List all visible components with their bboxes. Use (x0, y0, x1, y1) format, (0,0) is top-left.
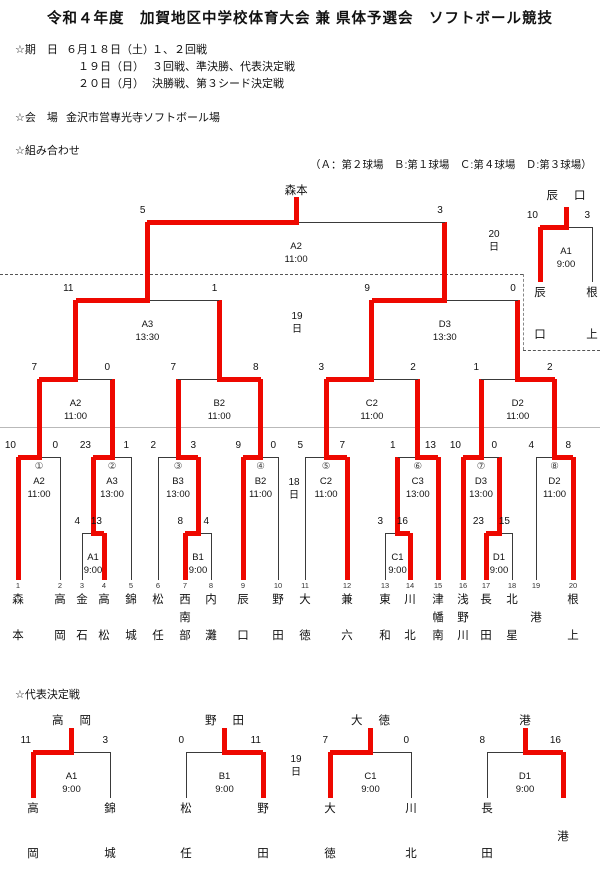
qf-A2-code: A2 (54, 398, 98, 409)
team-name-16-char: 野 (455, 609, 471, 625)
r2-8-left-score: 4 (510, 440, 534, 451)
r2-3-code: B3 (156, 476, 200, 487)
r2-8-code: D2 (533, 476, 577, 487)
day-label-1: 19 日 (282, 310, 312, 336)
third-seed-right-team-name-char: 上 (584, 326, 600, 342)
team-seed-14: 14 (400, 581, 420, 590)
rep-D1-code: D1 (503, 771, 547, 782)
team-seed-1: 1 (8, 581, 28, 590)
rep-C1-right-team-name-char: 川 (403, 800, 419, 816)
rep-section-heading: ☆代表決定戦 (15, 686, 80, 702)
sf-A3-advance-line (145, 222, 150, 300)
team-seed-20: 20 (563, 581, 583, 590)
final-time: 11:00 (274, 254, 318, 265)
day-separator-notch-vertical (523, 274, 524, 350)
r2-7-right-score: 0 (473, 440, 497, 451)
qf-A2-right-score: 0 (86, 362, 110, 373)
team-name-10-char: 田 (270, 627, 286, 643)
team-name-4-char: 高 (96, 591, 112, 607)
team-name-18-char: 星 (504, 627, 520, 643)
r1-B1-right-score: 4 (185, 516, 209, 527)
team-seed-16: 16 (453, 581, 473, 590)
day-label-2: 18 日 (279, 476, 309, 502)
team-name-3-char: 石 (74, 627, 90, 643)
rep-D1-right-score: 16 (537, 735, 561, 746)
team-name-11-char: 大 (297, 591, 313, 607)
team-name-20-char: 根 (565, 591, 581, 607)
sf-A3-left-score: 11 (50, 283, 74, 294)
r1-C1-time: 9:00 (376, 565, 420, 576)
qf-C2-advance-line (369, 300, 374, 379)
team-seed-15: 15 (428, 581, 448, 590)
rep-B1-winner-name: 野田 (183, 712, 283, 728)
final-winner-name: 森本 (246, 182, 346, 198)
r2-2-right-score: 1 (105, 440, 129, 451)
team-name-17-char: 長 (478, 591, 494, 607)
team-name-6-char: 松 (150, 591, 166, 607)
fields-note: （Ａ：第２球場 Ｂ:第１球場 Ｃ:第４球場 Ｄ:第３球場） (310, 157, 592, 172)
team-name-6-char: 任 (150, 627, 166, 643)
r2-8-right-score: 8 (547, 440, 571, 451)
r1-A1-right-score: 13 (78, 516, 102, 527)
qf-A2-time: 11:00 (54, 411, 98, 422)
team-name-20-char: 上 (565, 627, 581, 643)
r2-2-number: ② (104, 461, 120, 472)
rep-A1-right-team-name-char: 城 (102, 845, 118, 861)
team-name-7-char: 南 (177, 609, 193, 625)
sf-A3-code: A3 (125, 319, 169, 330)
sf-D3-time: 13:30 (423, 332, 467, 343)
rep-B1-left-score: 0 (160, 735, 184, 746)
r2-5-code: C2 (304, 476, 348, 487)
team-name-13-char: 和 (377, 627, 393, 643)
schedule-games-2: ３回戦、準決勝、代表決定戦 (152, 58, 295, 74)
sf-A3-time: 13:30 (125, 332, 169, 343)
qf-A2-left-score: 7 (13, 362, 37, 373)
rep-A1-winner-bar (33, 750, 74, 755)
rep-D1-left-team-name-char: 田 (479, 845, 495, 861)
qf-D2-right-score: 2 (529, 362, 553, 373)
day-separator-notch-horizontal (523, 350, 600, 351)
r2-7-number: ⑦ (473, 461, 489, 472)
schedule-games-1: １、２回戦 (152, 41, 207, 57)
rep-C1-left-line (328, 752, 333, 798)
rep-D1-left-team-name-char: 長 (479, 800, 495, 816)
rep-A1-winner-name: 高岡 (30, 712, 130, 728)
team-name-1-char: 森 (10, 591, 26, 607)
rep-D1-winner-bar (523, 750, 564, 755)
r2-5-right-score: 7 (321, 440, 345, 451)
rep-C1-time: 9:00 (349, 784, 393, 795)
r1-D1-code: D1 (477, 552, 521, 563)
r2-1-number: ① (31, 461, 47, 472)
r1-D1-right-score: 15 (486, 516, 510, 527)
r2-7-code: D3 (459, 476, 503, 487)
r2-7-left-score: 10 (437, 440, 461, 451)
team-seed-17: 17 (476, 581, 496, 590)
r2-4-code: B2 (239, 476, 283, 487)
final-advance-line (294, 197, 299, 222)
team-seed-8: 8 (201, 581, 221, 590)
r1-C1-right-score: 16 (384, 516, 408, 527)
rep-B1-time: 9:00 (203, 784, 247, 795)
r2-3-time: 13:00 (156, 489, 200, 500)
team-seed-9: 9 (233, 581, 253, 590)
rep-B1-right-team-name-char: 野 (255, 800, 271, 816)
r2-6-code: C3 (396, 476, 440, 487)
r2-3-right-score: 3 (172, 440, 196, 451)
qf-B2-winner-bar (217, 377, 261, 382)
third-seed-right-score: 3 (566, 210, 590, 221)
team-name-19-char: 港 (528, 609, 544, 625)
r2-4-number: ④ (253, 461, 269, 472)
team-seed-10: 10 (268, 581, 288, 590)
rep-A1-left-team-name-char: 高 (25, 800, 41, 816)
r2-6-right-score: 13 (412, 440, 436, 451)
r2-4-time: 11:00 (239, 489, 283, 500)
r2-8-time: 11:00 (533, 489, 577, 500)
rep-D1-left-line (487, 752, 488, 798)
team-seed-3: 3 (72, 581, 92, 590)
rep-D1-left-score: 8 (461, 735, 485, 746)
page-title: 令和４年度 加賀地区中学校体育大会 兼 県体予選会 ソフトボール競技 (0, 7, 600, 28)
team-name-1-char: 本 (10, 627, 26, 643)
qf-B2-code: B2 (197, 398, 241, 409)
r2-8-number: ⑧ (547, 461, 563, 472)
rep-C1-winner-bar (330, 750, 373, 755)
team-name-15-char: 幡 (430, 609, 446, 625)
qf-C2-winner-bar (326, 377, 374, 382)
qf-D2-advance-line (515, 300, 520, 379)
r1-B1-left-score: 8 (159, 516, 183, 527)
third-seed-winner-name: 辰口 (524, 187, 600, 203)
rep-A1-advance-line (69, 728, 74, 752)
rep-A1-left-team-name-char: 岡 (25, 845, 41, 861)
rep-C1-code: C1 (349, 771, 393, 782)
final-winner-bar (147, 220, 298, 225)
team-seed-6: 6 (148, 581, 168, 590)
rep-B1-winner-bar (222, 750, 263, 755)
team-seed-13: 13 (375, 581, 395, 590)
sf-A3-right-score: 1 (193, 283, 217, 294)
rep-B1-advance-line (222, 728, 227, 752)
team-name-16-char: 浅 (455, 591, 471, 607)
rep-A1-code: A1 (50, 771, 94, 782)
team-seed-4: 4 (94, 581, 114, 590)
r2-1-right-score: 0 (34, 440, 58, 451)
r2-3-number: ③ (170, 461, 186, 472)
r2-1-left-score: 10 (0, 440, 16, 451)
rep-B1-left-team-name-char: 松 (178, 800, 194, 816)
team-name-11-char: 徳 (297, 627, 313, 643)
third-seed-right-team-name-char: 根 (584, 284, 600, 300)
rep-B1-right-line (261, 752, 266, 798)
third-seed-left-score: 10 (514, 210, 538, 221)
r2-5-number: ⑤ (318, 461, 334, 472)
sf-D3-right-score: 0 (492, 283, 516, 294)
team-name-3-char: 金 (74, 591, 90, 607)
rep-A1-time: 9:00 (50, 784, 94, 795)
rep-C1-advance-line (368, 728, 373, 752)
r1-D1-time: 9:00 (477, 565, 521, 576)
final-left-score: 5 (121, 205, 145, 216)
r2-5-time: 11:00 (304, 489, 348, 500)
rep-B1-left-line (186, 752, 187, 798)
qf-C2-left-score: 3 (300, 362, 324, 373)
final-code: A2 (274, 241, 318, 252)
rep-C1-left-team-name-char: 大 (322, 800, 338, 816)
team-name-16-char: 川 (455, 627, 471, 643)
tournament-sheet: 令和４年度 加賀地区中学校体育大会 兼 県体予選会 ソフトボール競技 ☆期 日 … (0, 0, 600, 873)
r2-6-time: 13:00 (396, 489, 440, 500)
venue-value: 金沢市営専光寺ソフトボール場 (66, 109, 220, 125)
r2-2-left-score: 23 (67, 440, 91, 451)
third-seed-time: 9:00 (544, 259, 588, 270)
rep-B1-left-team-name-char: 任 (178, 845, 194, 861)
team-seed-19: 19 (526, 581, 546, 590)
r2-3-left-score: 2 (132, 440, 156, 451)
team-name-7-char: 西 (177, 591, 193, 607)
r2-7-time: 13:00 (459, 489, 503, 500)
schedule-date-2: １９日（日） (78, 58, 144, 74)
sf-A3-winner-bar (76, 298, 150, 303)
team-seed-11: 11 (295, 581, 315, 590)
team-seed-7: 7 (175, 581, 195, 590)
qf-D2-time: 11:00 (496, 411, 540, 422)
schedule-date-3: ２０日（月） (78, 75, 144, 91)
team-name-5-char: 錦 (123, 591, 139, 607)
rep-A1-left-line (31, 752, 36, 798)
team-name-9-char: 口 (235, 627, 251, 643)
day-label-3: 19 日 (281, 753, 311, 779)
sf-D3-advance-line (442, 222, 447, 300)
r1-B1-code: B1 (176, 552, 220, 563)
rep-C1-right-score: 0 (385, 735, 409, 746)
sf-D3-left-score: 9 (346, 283, 370, 294)
date-label: ☆期 日 (15, 41, 58, 57)
r1-B1-time: 9:00 (176, 565, 220, 576)
r1-A1-code: A1 (71, 552, 115, 563)
schedule-games-3: 決勝戦、第３シード決定戦 (152, 75, 284, 91)
team-name-14-char: 川 (402, 591, 418, 607)
final-right-score: 3 (419, 205, 443, 216)
r1-A1-time: 9:00 (71, 565, 115, 576)
qf-B2-advance-line (217, 300, 222, 379)
team-name-2-char: 高 (52, 591, 68, 607)
r2-2-time: 13:00 (90, 489, 134, 500)
sf-D3-code: D3 (423, 319, 467, 330)
qf-B2-left-score: 7 (152, 362, 176, 373)
r1-C1-code: C1 (376, 552, 420, 563)
qf-B2-time: 11:00 (197, 411, 241, 422)
team-name-4-char: 松 (96, 627, 112, 643)
team-name-8-char: 灘 (203, 627, 219, 643)
qf-B2-right-score: 8 (235, 362, 259, 373)
qf-C2-code: C2 (350, 398, 394, 409)
team-name-15-char: 南 (430, 627, 446, 643)
team-seed-5: 5 (121, 581, 141, 590)
r1-C1-left-score: 3 (359, 516, 383, 527)
team-name-15-char: 津 (430, 591, 446, 607)
rep-A1-right-score: 3 (84, 735, 108, 746)
team-name-12-char: 六 (339, 627, 355, 643)
rep-C1-left-score: 7 (304, 735, 328, 746)
third-seed-left-line (538, 227, 543, 282)
rep-A1-right-team-name-char: 錦 (102, 800, 118, 816)
venue-label: ☆会 場 (15, 109, 58, 125)
team-seed-18: 18 (502, 581, 522, 590)
third-seed-code: A1 (544, 246, 588, 257)
team-seed-12: 12 (337, 581, 357, 590)
rep-D1-right-team-name-char: 港 (555, 828, 571, 844)
team-name-8-char: 内 (203, 591, 219, 607)
rep-B1-right-score: 11 (237, 735, 261, 746)
third-seed-left-team-name-char: 口 (532, 326, 548, 342)
r2-6-left-score: 1 (372, 440, 396, 451)
day-separator-19-18 (0, 427, 600, 428)
r2-2-code: A3 (90, 476, 134, 487)
rep-C1-winner-name: 大徳 (329, 712, 429, 728)
team-name-9-char: 辰 (235, 591, 251, 607)
r2-1-code: A2 (17, 476, 61, 487)
rep-B1-code: B1 (203, 771, 247, 782)
rep-D1-winner-name: 港 (483, 712, 583, 728)
rep-D1-advance-line (523, 728, 528, 752)
team-name-2-char: 岡 (52, 627, 68, 643)
third-seed-right-line (592, 227, 593, 282)
team-name-13-char: 東 (377, 591, 393, 607)
team-name-5-char: 城 (123, 627, 139, 643)
rep-D1-right-line (561, 752, 566, 798)
rep-B1-right-team-name-char: 田 (255, 845, 271, 861)
team-name-14-char: 北 (402, 627, 418, 643)
r2-5-left-score: 5 (279, 440, 303, 451)
r2-4-left-score: 9 (217, 440, 241, 451)
r2-6-number: ⑥ (410, 461, 426, 472)
pairings-label: ☆組み合わせ (15, 142, 80, 158)
day-label-0: 20 日 (479, 228, 509, 254)
sf-D3-winner-bar (372, 298, 447, 303)
schedule-date-1: ６月１８日（土） (66, 41, 154, 57)
third-seed-left-team-name-char: 辰 (532, 284, 548, 300)
r2-4-right-score: 0 (252, 440, 276, 451)
rep-C1-left-team-name-char: 徳 (322, 845, 338, 861)
team-name-7-char: 部 (177, 627, 193, 643)
rep-A1-right-line (110, 752, 111, 798)
team-name-12-char: 兼 (339, 591, 355, 607)
rep-D1-time: 9:00 (503, 784, 547, 795)
qf-C2-time: 11:00 (350, 411, 394, 422)
qf-D2-winner-bar (515, 377, 554, 382)
rep-C1-right-team-name-char: 北 (403, 845, 419, 861)
team-name-10-char: 野 (270, 591, 286, 607)
team-name-17-char: 田 (478, 627, 494, 643)
rep-C1-right-line (411, 752, 412, 798)
team-name-18-char: 北 (504, 591, 520, 607)
qf-D2-code: D2 (496, 398, 540, 409)
team-seed-2: 2 (50, 581, 70, 590)
r2-1-time: 11:00 (17, 489, 61, 500)
qf-D2-left-score: 1 (455, 362, 479, 373)
rep-A1-left-score: 11 (7, 735, 31, 746)
qf-C2-right-score: 2 (392, 362, 416, 373)
qf-A2-advance-line (73, 300, 78, 379)
